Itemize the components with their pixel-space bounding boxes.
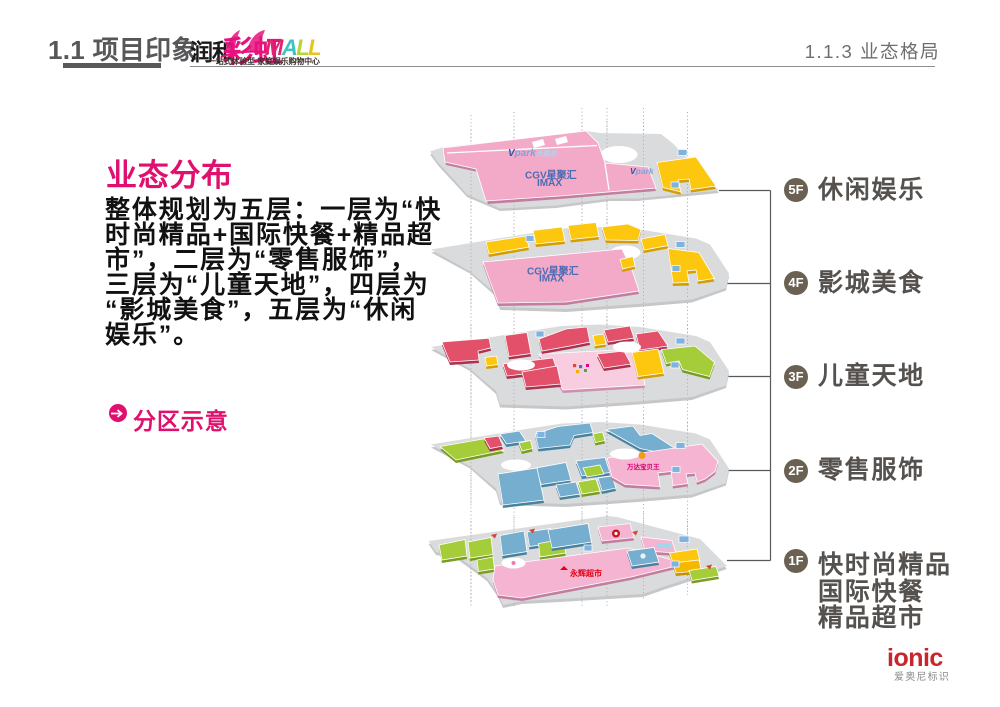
- svg-text:IMAX: IMAX: [539, 274, 564, 285]
- svg-text:永辉超市: 永辉超市: [569, 568, 602, 578]
- svg-text:Vpark: Vpark: [630, 166, 655, 176]
- svg-text:万达宝贝王: 万达宝贝王: [626, 462, 660, 471]
- svg-text:IMAX: IMAX: [537, 178, 562, 189]
